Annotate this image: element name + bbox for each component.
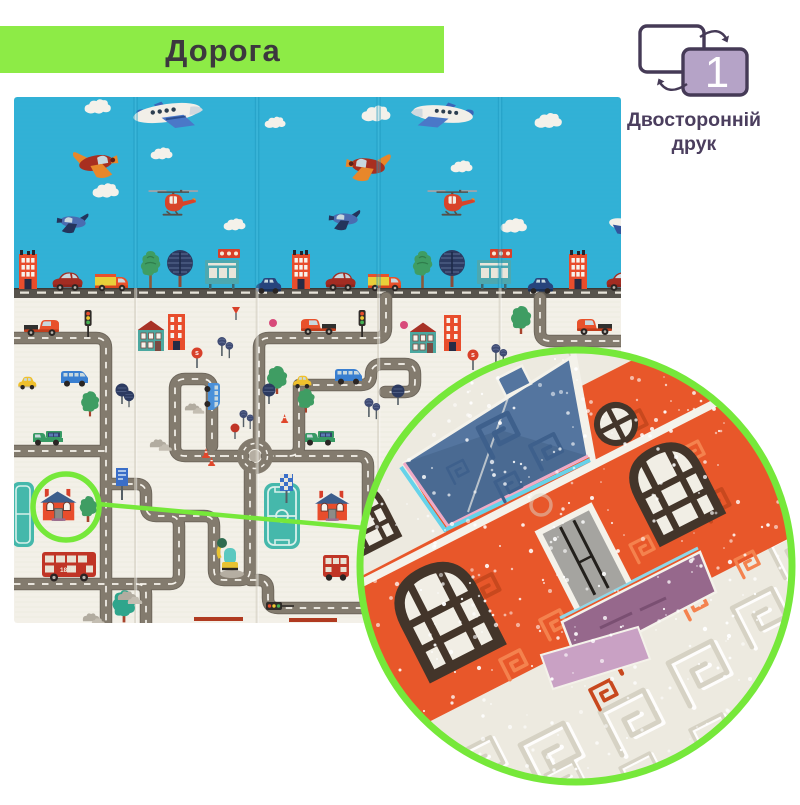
svg-text:друк: друк	[672, 133, 717, 155]
svg-text:S: S	[471, 353, 475, 359]
svg-text:Дорога: Дорога	[165, 33, 280, 68]
svg-text:1: 1	[705, 48, 729, 97]
svg-text:Двосторонній: Двосторонній	[627, 109, 761, 131]
svg-text:S: S	[195, 351, 199, 357]
svg-text:1818: 1818	[60, 567, 75, 574]
